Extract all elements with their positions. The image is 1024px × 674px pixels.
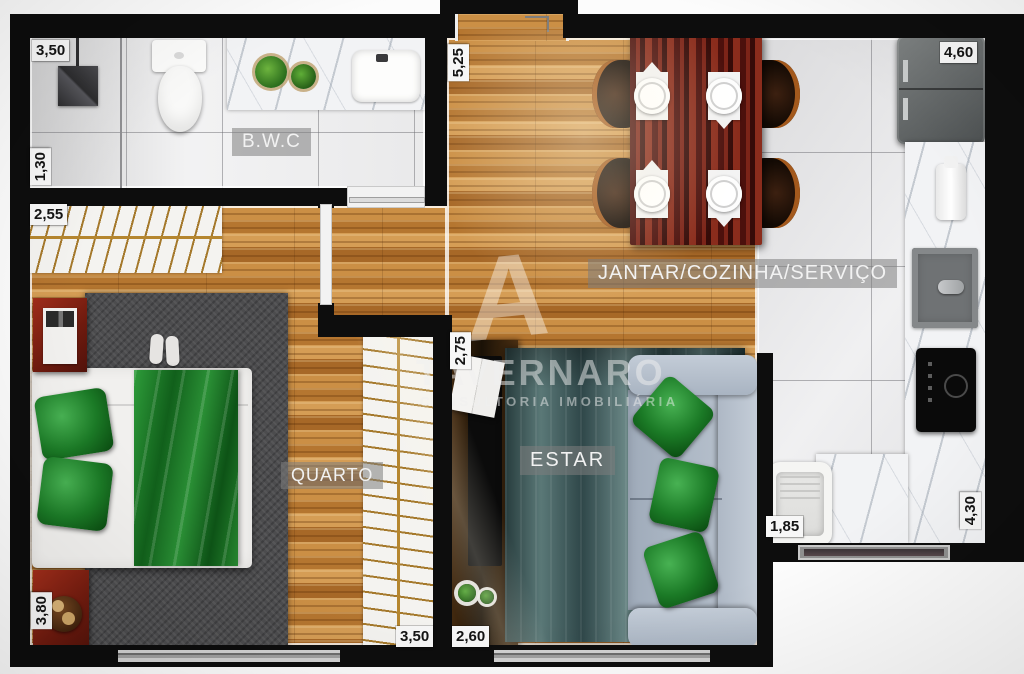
wall-living-kitchen (757, 353, 773, 667)
balcony-door-glass (804, 549, 944, 556)
sofa-back (718, 355, 757, 648)
entry-cap-wall (440, 0, 578, 14)
floor-plant-icon (458, 584, 476, 602)
bed-blanket (134, 370, 238, 566)
entry-niche (455, 10, 569, 41)
kitchen-faucet-icon (938, 280, 964, 294)
room-label-quarto: QUARTO (281, 462, 383, 489)
napkin-3 (709, 112, 739, 129)
dim-closet-width: 2,55 (30, 204, 67, 225)
shower-arm (76, 36, 79, 70)
living-window (494, 650, 710, 662)
dim-entry-depth: 5,25 (448, 44, 469, 81)
dim-bedroom-width: 3,50 (396, 626, 433, 647)
plate-2 (634, 176, 670, 212)
shower-drain (58, 66, 98, 106)
plate-3 (706, 78, 742, 114)
wall-top-left (10, 14, 455, 38)
dim-bath-width: 3,50 (32, 40, 69, 61)
sofa-armrest-bottom (628, 608, 757, 648)
wall-top-right (563, 14, 1024, 38)
bedroom-window (118, 650, 340, 662)
floor-plan: A TAVERNARO CONSULTORIA IMOBILIÁRIA B.W.… (0, 0, 1024, 674)
magazine-print (46, 311, 74, 327)
slipper-right-icon (165, 336, 180, 367)
water-bottle-neck (944, 156, 958, 168)
slipper-left-icon (149, 334, 164, 365)
napkin-2 (637, 160, 667, 177)
plate-1 (634, 78, 670, 114)
plate-4 (706, 176, 742, 212)
sink-faucet-icon (376, 54, 388, 62)
room-label-estar: ESTAR (520, 446, 615, 475)
room-label-jantar: JANTAR/COZINHA/SERVIÇO (588, 259, 897, 288)
napkin-1 (637, 62, 667, 79)
refrigerator-door-seam (899, 88, 983, 90)
fruit-2 (62, 612, 75, 625)
napkin-4 (709, 210, 739, 227)
bathroom-door-leaf (349, 197, 425, 203)
dim-kitchen-width: 4,60 (940, 42, 977, 63)
wall-bath-right (425, 14, 447, 206)
laundry-tub-ribs (780, 476, 820, 502)
wall-right (985, 14, 1024, 562)
cooktop-burner-ring (944, 374, 968, 398)
dim-living-width: 2,60 (452, 626, 489, 647)
dim-bath-depth: 1,30 (30, 148, 51, 185)
vanity-plant2-icon (291, 64, 316, 89)
entry-door-frame-icon (525, 16, 549, 32)
bed-pillow-1 (33, 387, 114, 461)
bedroom-door-opening (320, 204, 332, 305)
dim-laundry-width: 1,85 (766, 516, 803, 537)
water-bottle-icon (936, 164, 966, 220)
vanity-plant-icon (255, 56, 287, 88)
floor-plant2-icon (480, 590, 494, 604)
wardrobe-rack (363, 330, 433, 648)
fruit-1 (52, 600, 64, 612)
balcony-sliding-door (798, 545, 950, 560)
dim-bedroom-depth: 3,80 (31, 592, 52, 629)
room-label-bwc: B.W.C (232, 128, 311, 156)
shower-divider (120, 36, 122, 188)
bed-pillow-2 (36, 456, 114, 532)
wall-left (10, 14, 30, 667)
toilet-flush-button (174, 52, 184, 59)
toilet-bowl (158, 66, 202, 132)
dim-kitchen-depth: 4,30 (960, 492, 981, 529)
sofa-armrest-top (628, 355, 757, 395)
dim-hall-depth: 2,75 (450, 332, 471, 369)
wall-hall-bottom (318, 315, 452, 337)
refrigerator-handles (903, 60, 908, 120)
cooktop-knobs (928, 362, 932, 410)
